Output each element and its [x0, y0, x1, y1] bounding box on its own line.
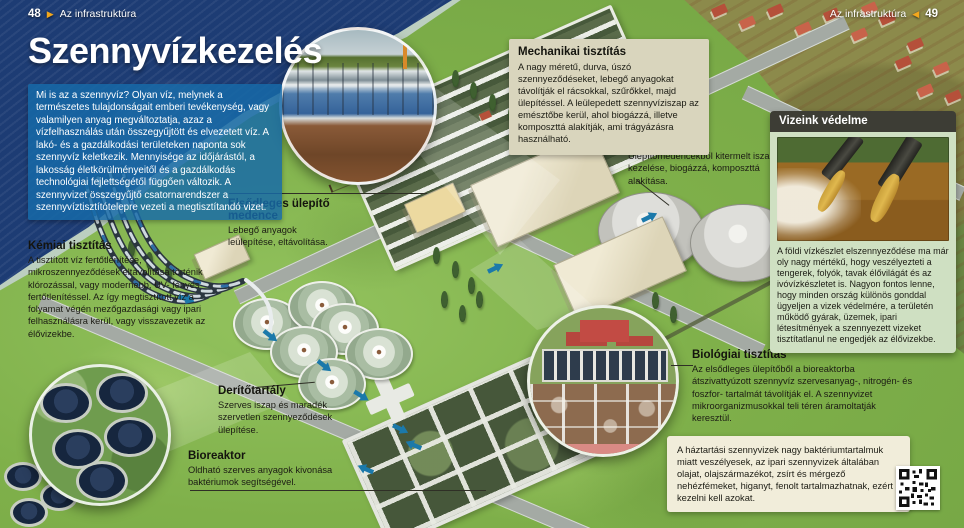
tree-icon	[452, 70, 459, 87]
tree-icon	[652, 292, 659, 309]
callout-body: A nagy méretű, durva, úszó szennyeződése…	[518, 61, 700, 146]
callout-title: Bioreaktor	[188, 450, 383, 462]
arrow-left-icon: ◀	[912, 9, 919, 20]
callout-body: Az elsődleges ülepítőből a bioreaktorba …	[692, 363, 916, 424]
arrow-right-icon: ▶	[47, 9, 54, 20]
callout-title: Mechanikai tisztítás	[518, 46, 700, 58]
covered-basins	[542, 349, 669, 382]
page-title: Szennyvízkezelés	[28, 30, 322, 72]
tree-icon	[670, 306, 677, 323]
tree-icon	[489, 94, 496, 111]
clarifier-tank	[40, 383, 92, 423]
callout-title: Kémiai tisztítás	[28, 240, 220, 252]
callout-body: Szerves iszap és maradék szervetlen szen…	[218, 399, 358, 436]
sidebar-title: Vizeink védelme	[770, 111, 956, 132]
callout-body: Lebegő anyagok leülepítése, eltávolítása…	[228, 224, 346, 249]
callout-body: A tisztított víz fertőtlenítése, mikrosz…	[28, 254, 220, 340]
tree-icon	[459, 305, 466, 322]
sidebar-vizeink-vedelme: Vizeink védelme A földi vízkészlet elsze…	[770, 111, 956, 353]
qr-pattern	[899, 469, 937, 507]
page-header-right: Az infrastruktúra ◀ 49	[830, 8, 938, 20]
clarifier-tank	[96, 373, 148, 413]
red-awning	[562, 444, 644, 454]
page-number: 49	[925, 8, 938, 20]
callout-deritotartaly: Derítőtartály Szerves iszap és maradék s…	[218, 385, 358, 436]
crane-icon	[403, 39, 407, 69]
warning-box: A háztartási szennyvizek nagy baktériumt…	[667, 436, 910, 512]
polluted-stream	[866, 171, 903, 225]
clarifier-tanks-photo-inset	[29, 364, 171, 506]
tree-icon	[452, 261, 459, 278]
tree-icon	[433, 247, 440, 264]
tree-icon	[476, 291, 483, 308]
callout-title: Derítőtartály	[218, 385, 358, 397]
clarifier-tank	[104, 417, 156, 457]
tree-icon	[441, 291, 448, 308]
sidebar-text: A földi vízkészlet elszennyeződése ma má…	[777, 246, 949, 345]
sidebar-body: A földi vízkészlet elszennyeződése ma má…	[770, 132, 956, 353]
page-number: 48	[28, 8, 41, 20]
callout-body: Ülepítőmedencékből kitermelt iszap kezel…	[628, 150, 780, 187]
clarifier-tank	[10, 498, 48, 527]
callout-kemiai-tisztitas: Kémiai tisztítás A tisztított víz fertőt…	[28, 240, 220, 340]
warning-text: A háztartási szennyvizek nagy baktériumt…	[677, 444, 900, 504]
tree-icon	[468, 277, 475, 294]
leader-line	[671, 365, 693, 366]
section-title: Az infrastruktúra	[830, 8, 906, 20]
page-header-left: 48 ▶ Az infrastruktúra	[28, 8, 136, 20]
intro-paragraph: Mi is az a szennyvíz? Olyan víz, melynek…	[28, 84, 282, 220]
book-spread-wastewater-treatment: 48 ▶ Az infrastruktúra Az infrastruktúra…	[0, 0, 964, 528]
callout-box-mechanikai-tisztitas: Mechanikai tisztítás A nagy méretű, durv…	[509, 39, 709, 155]
flow-arrow-icon	[486, 260, 506, 276]
treatment-plant-photo-inset	[527, 305, 679, 457]
qr-code	[896, 466, 940, 510]
callout-body: Oldható szerves anyagok kivonása baktéri…	[188, 464, 383, 489]
clarifier-tank	[76, 461, 128, 501]
polluted-discharge-photo	[777, 137, 949, 241]
section-title: Az infrastruktúra	[60, 8, 136, 20]
red-roof-building	[580, 320, 630, 342]
callout-biologiai-tisztitas: Biológiai tisztítás Az elsődleges ülepít…	[692, 349, 916, 424]
leader-line	[190, 490, 486, 491]
tree-icon	[470, 82, 477, 99]
callout-bioreaktor: Bioreaktor Oldható szerves anyagok kivon…	[188, 450, 383, 489]
